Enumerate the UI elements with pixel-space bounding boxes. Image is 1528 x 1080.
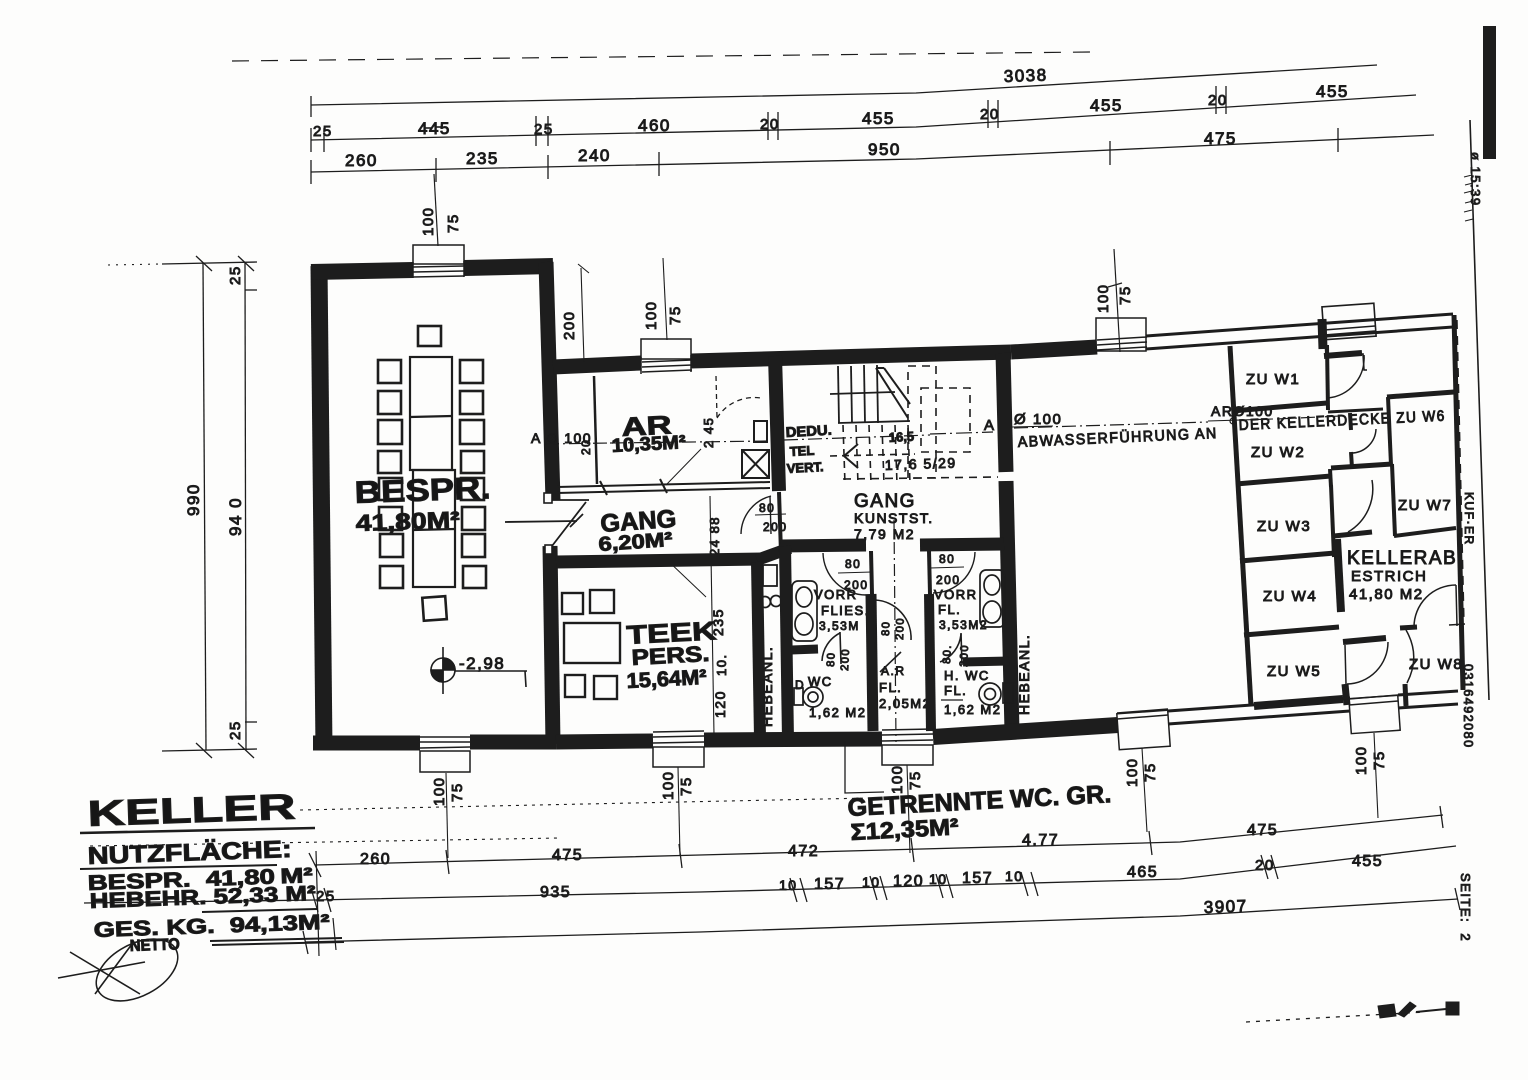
svg-text:15,64M²: 15,64M²	[626, 666, 707, 693]
svg-text:3,53M: 3,53M	[819, 619, 860, 633]
svg-text:DEDU.: DEDU.	[785, 422, 832, 440]
svg-text:ZU W5: ZU W5	[1267, 663, 1321, 680]
svg-text:20: 20	[1208, 92, 1228, 109]
svg-text:24 88: 24 88	[707, 516, 722, 556]
svg-text:ESTRICH: ESTRICH	[1351, 568, 1427, 585]
svg-text:455: 455	[862, 109, 895, 128]
svg-text:200: 200	[936, 573, 961, 587]
svg-text:41,80M²: 41,80M²	[355, 506, 460, 536]
svg-text:75: 75	[678, 776, 695, 796]
svg-text:1,62 M2: 1,62 M2	[944, 702, 1001, 717]
svg-text:472: 472	[788, 843, 819, 860]
svg-text:10.: 10.	[714, 653, 729, 676]
svg-text:200: 200	[894, 617, 907, 640]
svg-text:460: 460	[638, 116, 671, 135]
svg-text:HEBEANL.: HEBEANL.	[1016, 634, 1032, 715]
svg-text:94 0: 94 0	[226, 497, 245, 536]
svg-text:ZU W2: ZU W2	[1251, 444, 1305, 461]
svg-text:D: D	[795, 678, 805, 692]
svg-text:KELLER: KELLER	[87, 786, 296, 834]
svg-text:100: 100	[643, 300, 660, 330]
svg-text:75: 75	[1117, 285, 1134, 305]
svg-text:260: 260	[360, 851, 391, 868]
svg-text:200: 200	[561, 310, 578, 340]
svg-text:75: 75	[907, 770, 924, 790]
svg-text:475: 475	[552, 847, 583, 864]
svg-text:3038: 3038	[1003, 65, 1047, 86]
svg-text:990: 990	[184, 483, 203, 516]
svg-text:10: 10	[779, 877, 798, 893]
svg-text:-2,98: -2,98	[459, 654, 505, 673]
svg-text:TEL: TEL	[789, 443, 814, 459]
svg-text:455: 455	[1352, 853, 1383, 870]
svg-text:950: 950	[868, 140, 901, 159]
svg-text:10,35M²: 10,35M²	[611, 432, 686, 457]
svg-text:100: 100	[1124, 757, 1141, 787]
svg-text:KELLERAB: KELLERAB	[1347, 548, 1457, 569]
svg-text:H. WC: H. WC	[944, 668, 990, 683]
svg-text:ZU W7: ZU W7	[1398, 497, 1452, 514]
svg-text:75: 75	[667, 305, 684, 325]
svg-text:20: 20	[760, 116, 780, 133]
svg-text:80.: 80.	[941, 644, 954, 664]
svg-text:GANG: GANG	[854, 491, 916, 512]
svg-text:475: 475	[1247, 822, 1278, 839]
svg-text:80: 80	[880, 620, 893, 636]
svg-text:Ø 100: Ø 100	[1014, 411, 1062, 428]
svg-text:75: 75	[1142, 762, 1159, 782]
svg-text:A: A	[984, 417, 996, 434]
svg-text:80: 80	[759, 501, 775, 515]
svg-text:KUF·ER: KUF·ER	[1462, 492, 1476, 546]
svg-text:120: 120	[712, 690, 728, 718]
svg-text:FLIES.: FLIES.	[821, 603, 870, 618]
svg-text:ZU W8: ZU W8	[1409, 656, 1463, 673]
svg-text:475: 475	[1204, 129, 1237, 148]
svg-text:4.77: 4.77	[1022, 832, 1059, 849]
svg-text:935: 935	[540, 884, 571, 901]
svg-text:HEBEANL.: HEBEANL.	[759, 646, 775, 727]
svg-text:120: 120	[893, 873, 924, 890]
svg-text:VORR: VORR	[934, 587, 978, 602]
svg-text:200: 200	[839, 648, 852, 671]
svg-text:10: 10	[862, 874, 881, 890]
svg-text:100: 100	[660, 770, 677, 800]
svg-text:3,53M2: 3,53M2	[939, 618, 988, 632]
svg-text:25: 25	[227, 720, 244, 740]
svg-text:FL.: FL.	[879, 680, 902, 695]
svg-text:240: 240	[578, 146, 611, 165]
svg-text:100: 100	[1095, 283, 1112, 313]
svg-text:VORR: VORR	[814, 587, 858, 602]
svg-text:200: 200	[763, 520, 788, 534]
svg-text:235: 235	[466, 149, 499, 168]
svg-text:80: 80	[825, 651, 838, 667]
svg-text:FL.: FL.	[938, 602, 961, 617]
svg-text:157: 157	[814, 876, 845, 893]
svg-text:10: 10	[929, 871, 948, 887]
svg-text:FL.: FL.	[944, 683, 967, 698]
svg-text:ZU W1: ZU W1	[1246, 371, 1300, 388]
svg-text:157: 157	[962, 870, 993, 887]
svg-text:25: 25	[313, 123, 333, 140]
svg-text:BESPR.: BESPR.	[354, 470, 491, 510]
svg-text:WC: WC	[808, 674, 833, 689]
svg-text:25: 25	[227, 265, 244, 285]
svg-text:80: 80	[845, 557, 861, 571]
svg-text:VERT.: VERT.	[786, 459, 824, 476]
svg-text:100: 100	[420, 206, 437, 236]
svg-text:465: 465	[1127, 864, 1158, 881]
svg-text:17,6 5/29: 17,6 5/29	[885, 454, 957, 472]
svg-text:41,80 M2: 41,80 M2	[1349, 586, 1424, 603]
svg-text:10: 10	[1005, 868, 1024, 884]
svg-text:20: 20	[579, 439, 593, 455]
svg-text:2 45: 2 45	[701, 417, 716, 448]
svg-text:16,5: 16,5	[888, 429, 914, 445]
svg-text:20: 20	[1255, 857, 1275, 874]
svg-text:100: 100	[889, 764, 906, 794]
svg-text:3907: 3907	[1203, 896, 1247, 917]
svg-text:100: 100	[1353, 745, 1370, 775]
svg-text:75: 75	[1371, 750, 1388, 770]
svg-text:25: 25	[534, 121, 554, 138]
svg-text:ZU W3: ZU W3	[1257, 518, 1311, 535]
svg-text:100: 100	[431, 776, 448, 806]
svg-text:A.R: A.R	[881, 664, 906, 678]
svg-text:ZU W4: ZU W4	[1263, 588, 1317, 605]
svg-text:455: 455	[1090, 96, 1123, 115]
svg-text:445: 445	[418, 119, 451, 138]
svg-text:80: 80	[939, 552, 955, 566]
svg-text:20: 20	[980, 106, 1000, 123]
svg-text:75: 75	[449, 782, 466, 802]
svg-text:1,62 M2: 1,62 M2	[809, 705, 866, 720]
svg-text:SEITE: 2: SEITE: 2	[1458, 873, 1473, 942]
svg-text:ø 15:39: ø 15:39	[1468, 152, 1483, 207]
svg-text:25: 25	[316, 888, 336, 905]
svg-text:455: 455	[1316, 82, 1349, 101]
svg-text:260: 260	[345, 151, 378, 170]
svg-text:75: 75	[445, 213, 462, 233]
svg-text:0316492080: 0316492080	[1461, 664, 1475, 749]
svg-text:2,05M2: 2,05M2	[879, 696, 931, 711]
